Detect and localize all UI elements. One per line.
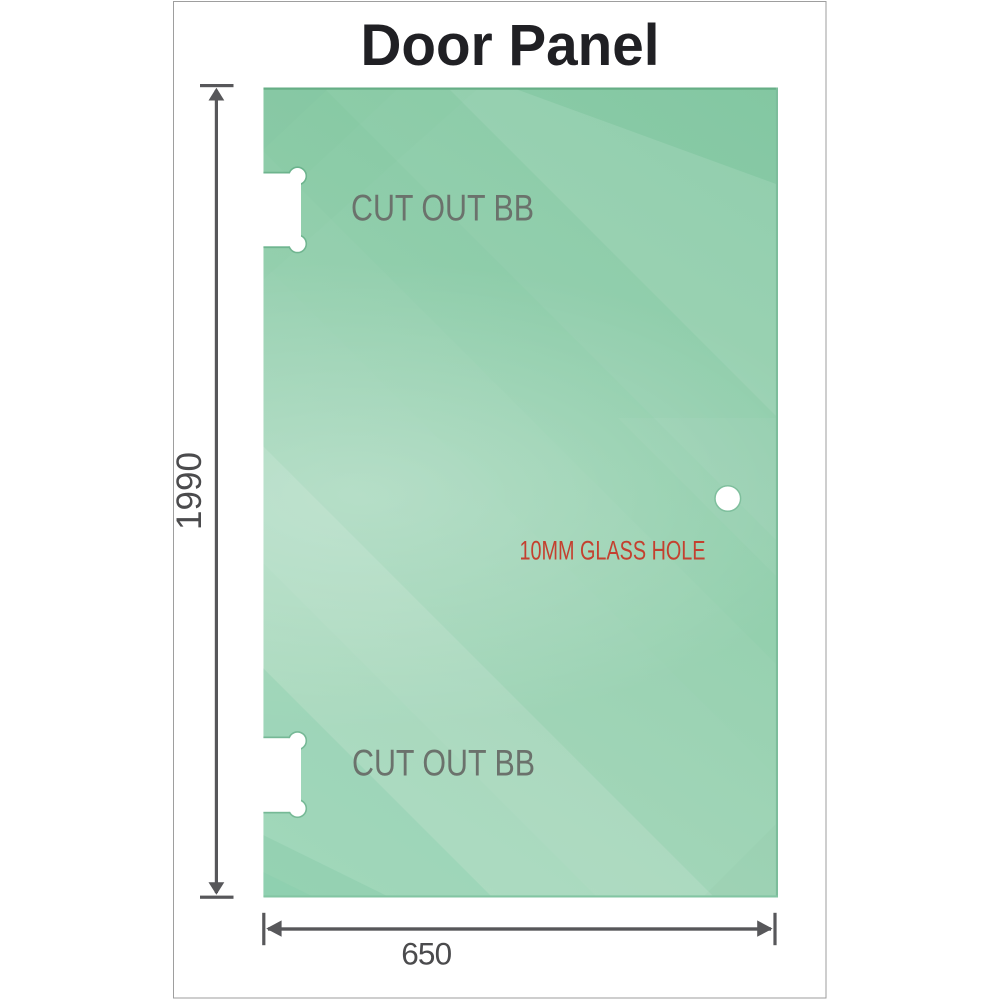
svg-text:650: 650 [401,936,451,972]
svg-text:1990: 1990 [170,452,209,530]
svg-text:Door Panel: Door Panel [361,13,660,78]
svg-text:CUT OUT BB: CUT OUT BB [352,742,535,784]
svg-text:CUT OUT BB: CUT OUT BB [351,187,534,229]
svg-text:10MM GLASS HOLE: 10MM GLASS HOLE [520,535,706,566]
